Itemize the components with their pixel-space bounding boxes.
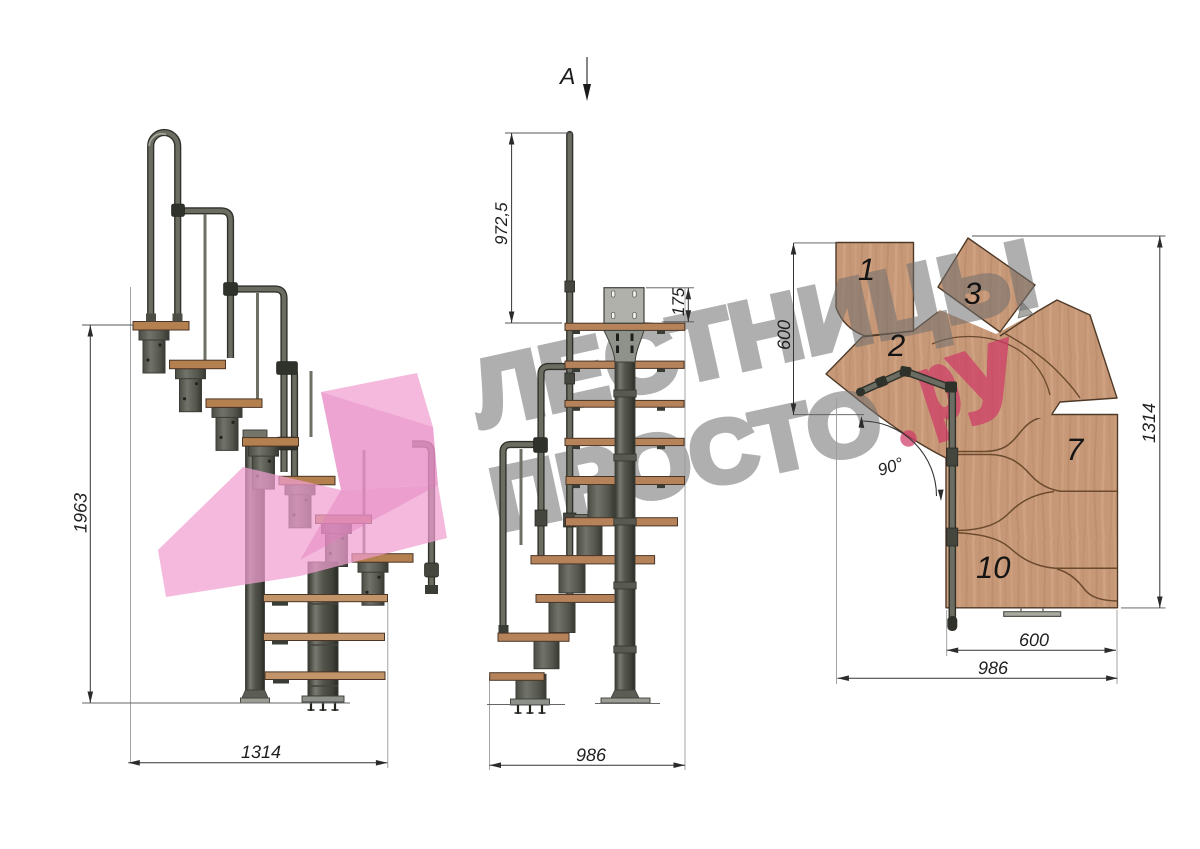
svg-text:986: 986 [978, 658, 1009, 678]
svg-text:10: 10 [976, 550, 1010, 585]
svg-text:1314: 1314 [241, 742, 281, 762]
svg-text:A: A [558, 63, 575, 89]
svg-text:2: 2 [887, 328, 905, 363]
svg-text:3: 3 [964, 276, 981, 311]
svg-text:1963: 1963 [71, 493, 91, 533]
svg-text:7: 7 [1066, 432, 1085, 467]
svg-text:600: 600 [1019, 630, 1049, 650]
svg-text:175: 175 [669, 287, 688, 316]
svg-text:986: 986 [576, 745, 607, 765]
svg-text:1314: 1314 [1139, 403, 1159, 443]
svg-text:600: 600 [774, 320, 794, 350]
svg-text:1: 1 [858, 252, 875, 287]
svg-text:972,5: 972,5 [492, 202, 511, 245]
